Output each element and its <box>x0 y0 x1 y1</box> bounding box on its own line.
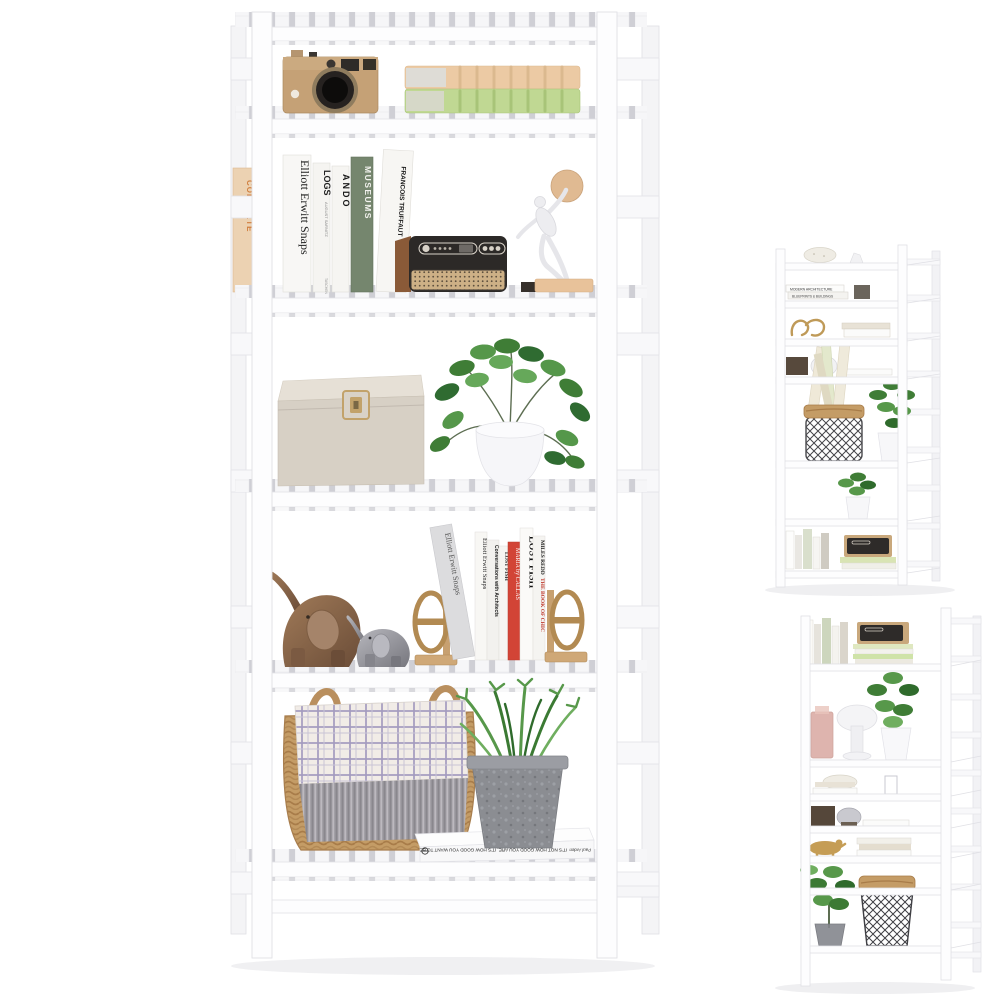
angled-view-top: MODERN ARCHITECTURE BLUEPRINTS & BUILDIN… <box>750 235 970 600</box>
book-conversations: Conversations with Architects <box>493 545 499 617</box>
statue-disc <box>551 170 583 202</box>
flat-book-author: Paul Arden <box>569 848 591 853</box>
white-potted-plant <box>838 473 876 520</box>
statue-head <box>535 197 546 208</box>
radio-display <box>459 245 473 253</box>
bottom-plant-basket <box>800 865 915 946</box>
succulent-grey-pot <box>457 679 579 848</box>
potted-plant-white <box>427 339 593 487</box>
book-maria: MARIA by CALLAS <box>514 548 520 600</box>
wire-basket-2 <box>859 876 915 946</box>
top-books-radio <box>805 618 913 664</box>
white-pot <box>476 422 544 486</box>
vintage-camera <box>283 50 378 113</box>
flat-books-tier2: MODERN ARCHITECTURE BLUEPRINTS & BUILDIN… <box>786 285 870 299</box>
gold-bookend-right <box>545 590 587 662</box>
statue-base <box>535 279 593 292</box>
book-museums-spine: MUSEUMS <box>363 166 373 220</box>
linen-storage-box <box>278 375 424 486</box>
book-ando-spine: ANDO <box>341 174 351 209</box>
gold-ornament <box>792 320 890 337</box>
book-elliott-spine: Elliott Erwitt Snaps <box>298 160 312 255</box>
white-pot <box>881 728 911 760</box>
shelf-top <box>235 12 647 45</box>
main-product-view: COMPLETE <box>215 0 675 990</box>
box-dome <box>811 806 909 826</box>
flat-book-blueprints: BLUEPRINTS & BUILDINGS <box>792 294 833 298</box>
plaid-blanket <box>295 700 468 842</box>
front-stretcher <box>252 900 617 913</box>
mushroom-lamp <box>837 705 877 760</box>
floor-shadow <box>231 957 655 975</box>
book-row-tier2: Elliott Erwitt Snaps LOGS AUGUST SARNITZ… <box>283 149 413 294</box>
bottom-books-radio <box>786 529 896 569</box>
floor-shadow <box>765 584 955 596</box>
elephant-large <box>269 571 361 667</box>
retro-radio <box>395 236 507 292</box>
blanket-fringe <box>299 778 468 842</box>
book-logs-sub: AUGUST SARNITZ <box>324 202 329 237</box>
flat-book-modern: MODERN ARCHITECTURE <box>790 287 833 291</box>
book-chic: THE BOOK OF CHIC <box>539 578 545 632</box>
book-miles: MILES REDD <box>539 540 545 575</box>
gold-figurine-books <box>805 838 911 858</box>
tall-tier-decor <box>811 672 919 760</box>
publisher-logo: TASCHEN <box>324 278 328 295</box>
radio-knob <box>422 245 429 252</box>
radio-grille <box>411 270 505 290</box>
angled-view-bottom <box>745 598 1000 998</box>
bowl-flat-books <box>813 775 897 794</box>
elephant-ear <box>372 634 390 658</box>
book-logs-spine: LOGS <box>322 170 332 196</box>
discus-statue <box>518 170 593 292</box>
box-clasp <box>343 391 369 419</box>
stacked-books <box>405 66 580 113</box>
rose-candle-holder <box>811 712 833 758</box>
bowl-and-figurine <box>804 248 863 264</box>
product-photo-canvas: COMPLETE <box>0 0 1000 1000</box>
wire-basket <box>804 405 864 461</box>
